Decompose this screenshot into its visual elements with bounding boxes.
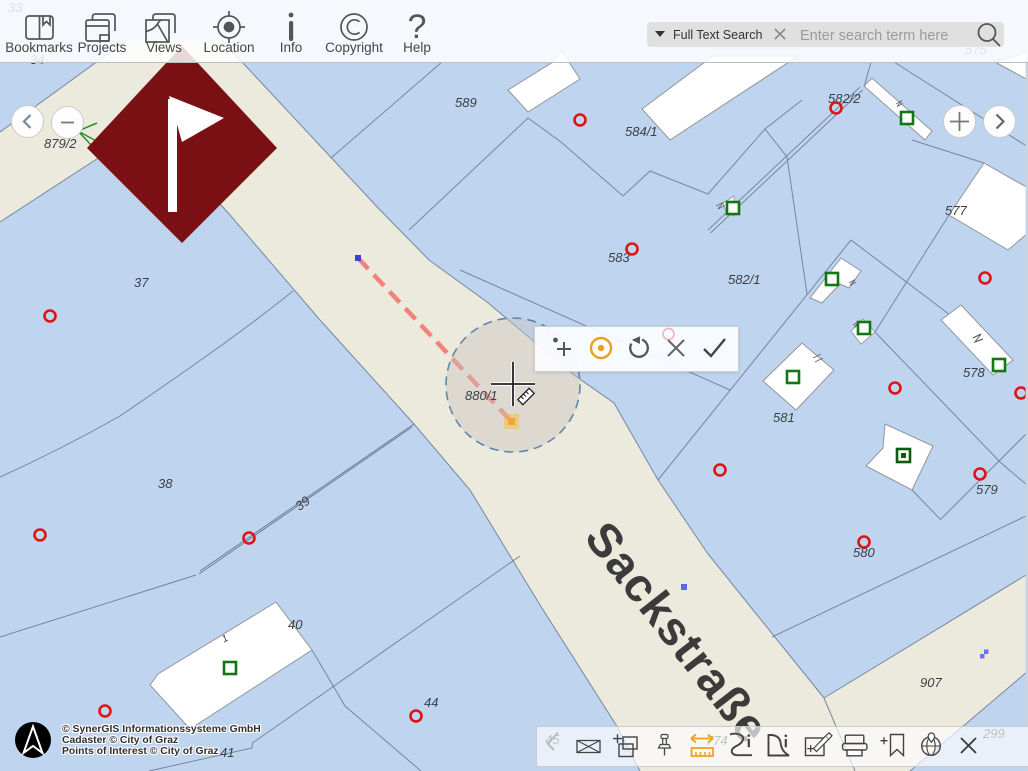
svg-text:582/1: 582/1 — [728, 272, 761, 287]
svg-text:Bookmarks: Bookmarks — [5, 40, 73, 55]
svg-text:44: 44 — [424, 695, 438, 710]
svg-text:581: 581 — [773, 410, 795, 425]
svg-text:Full Text Search: Full Text Search — [673, 28, 762, 42]
svg-text:Copyright: Copyright — [325, 40, 383, 55]
svg-text:37: 37 — [134, 275, 149, 290]
svg-text:578: 578 — [963, 365, 985, 380]
svg-text:Info: Info — [280, 40, 303, 55]
svg-text:38: 38 — [158, 476, 173, 491]
svg-text:Views: Views — [146, 40, 182, 55]
svg-text:577: 577 — [945, 203, 967, 218]
svg-text:40: 40 — [288, 617, 303, 632]
svg-text:584/1: 584/1 — [625, 124, 658, 139]
svg-text:Location: Location — [203, 40, 254, 55]
svg-text:Help: Help — [403, 40, 431, 55]
svg-text:579: 579 — [976, 482, 998, 497]
svg-text:907: 907 — [920, 675, 942, 690]
svg-text:Enter search term here: Enter search term here — [800, 28, 948, 44]
svg-text:Projects: Projects — [78, 40, 127, 55]
svg-text:589: 589 — [455, 95, 477, 110]
svg-text:880/1: 880/1 — [465, 388, 498, 403]
